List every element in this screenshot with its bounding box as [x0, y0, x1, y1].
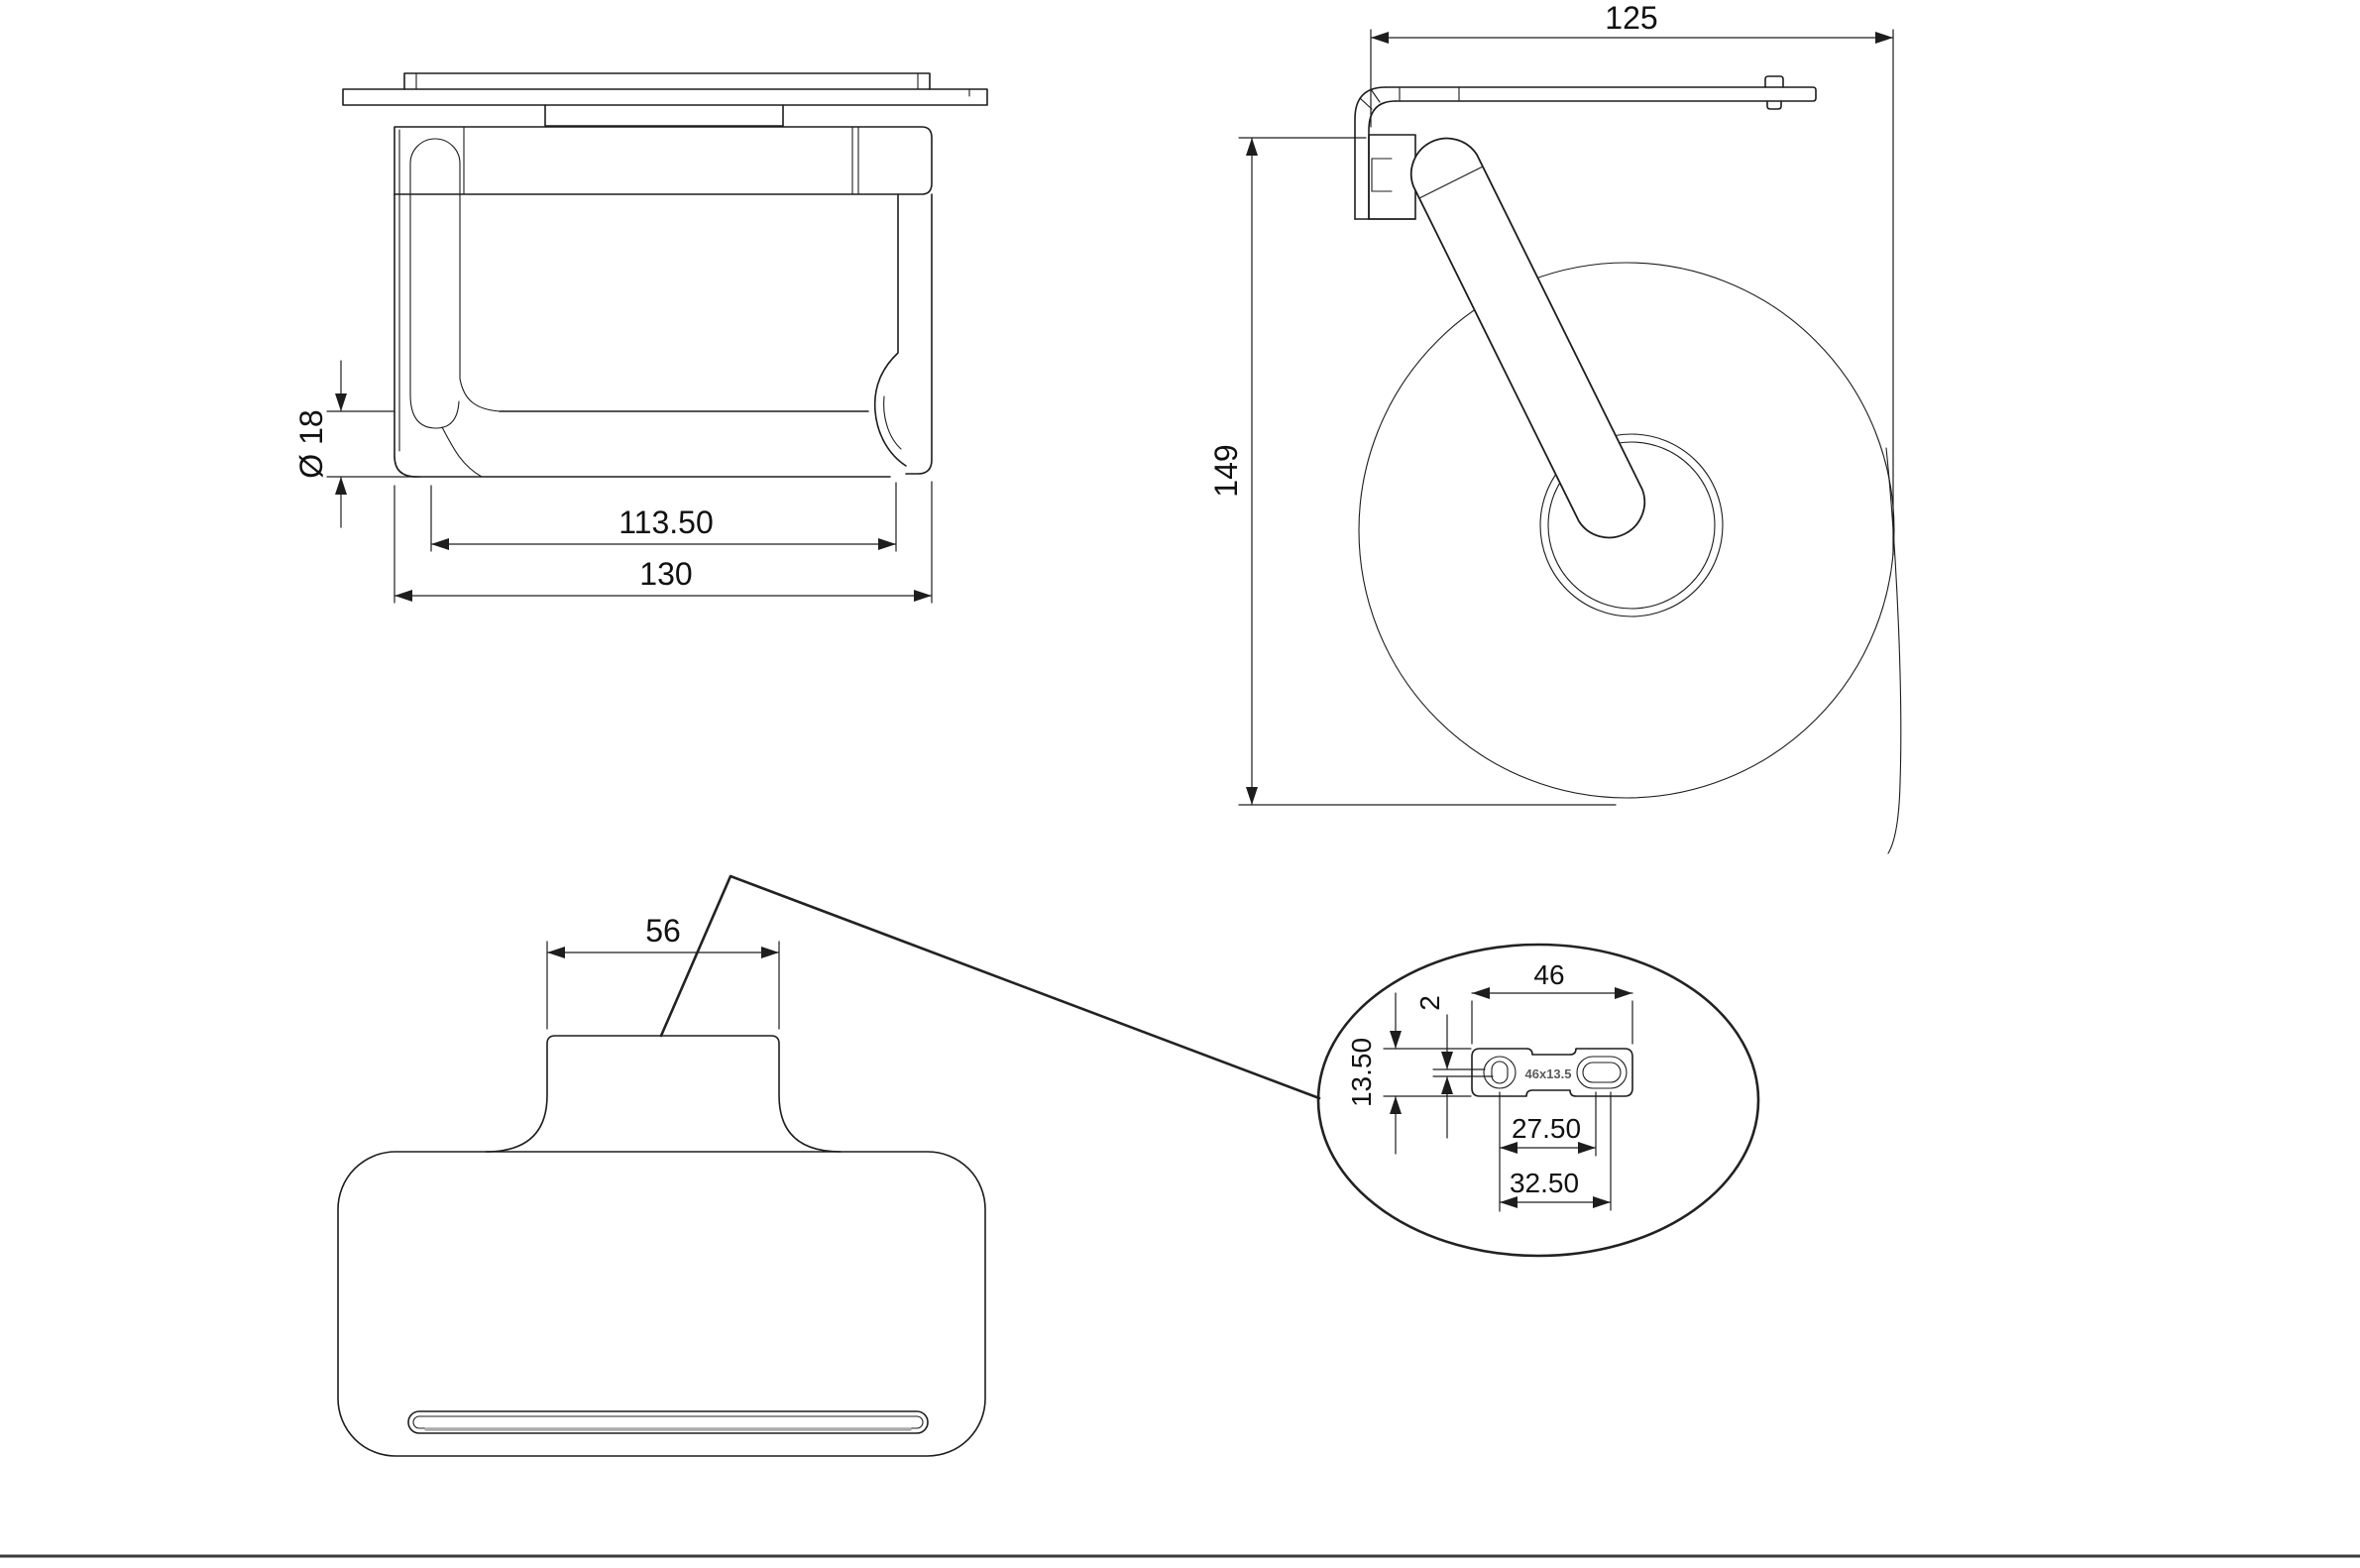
mount-tab — [486, 1036, 841, 1152]
dim-top-tab-width: 56 — [645, 913, 681, 949]
right-hole-slot — [1583, 1063, 1621, 1082]
drawing-sheet: Ø 18 113.50 130 125 149 — [0, 0, 2360, 1568]
dim-front-inner-width: 113.50 — [618, 504, 714, 540]
left-hole-slot — [1492, 1062, 1508, 1083]
arrowhead-right-icon — [1875, 32, 1893, 44]
arrowhead-left-icon — [431, 538, 449, 550]
wall-mount-plate — [545, 105, 783, 126]
detail-leader-line — [661, 876, 1319, 1098]
arrowhead-right-icon — [1615, 987, 1632, 999]
dim-side-height: 149 — [1208, 444, 1244, 497]
holder-arm-side — [1411, 139, 1644, 538]
arrowhead-up-icon — [1390, 1096, 1402, 1114]
arrowhead-down-icon — [335, 393, 347, 411]
arrowhead-down-icon — [1390, 1031, 1402, 1049]
dim-detail-plate-width: 46 — [1533, 959, 1564, 990]
technical-drawing: Ø 18 113.50 130 125 149 — [0, 0, 2360, 1568]
dim-side-depth: 125 — [1605, 0, 1657, 36]
shelf-back-plate-joints — [416, 73, 918, 89]
dim-diameter-lines — [327, 361, 420, 527]
dim-plate-height-lines — [1384, 993, 1471, 1154]
holder-top-arm — [394, 127, 932, 194]
shelf-plan-outline — [338, 1152, 985, 1456]
side-view: 125 149 — [1208, 0, 1901, 853]
shelf-side-profile — [1386, 87, 1816, 101]
bracket-bend — [1355, 87, 1396, 219]
dim-detail-pitch-outer: 32.50 — [1510, 1168, 1579, 1198]
holder-left-post — [394, 194, 416, 477]
dim-rim-lines — [1433, 1015, 1493, 1138]
roll-bar-tube — [416, 411, 890, 477]
shelf-front-slab — [343, 89, 987, 105]
arrowhead-left-icon — [394, 590, 412, 602]
arrowhead-right-icon — [914, 590, 932, 602]
dim-plate-width-lines — [1472, 993, 1632, 1044]
front-view: Ø 18 113.50 130 — [293, 73, 987, 603]
arrowhead-left-icon — [1472, 987, 1490, 999]
dim-tab-width-lines — [547, 942, 779, 1029]
arrowhead-up-icon — [335, 477, 347, 495]
shelf-pin — [1765, 76, 1783, 109]
shelf-back-plate — [404, 73, 930, 89]
holder-arm-joints — [464, 127, 858, 194]
dim-front-overall-width: 130 — [639, 556, 692, 592]
arrowhead-down-icon — [1441, 1052, 1453, 1069]
bracket-screw-boss — [1372, 159, 1392, 191]
plate-stamp-label: 46x13.5 — [1525, 1066, 1572, 1081]
dim-detail-rim: 2 — [1414, 995, 1445, 1011]
arrowhead-right-icon — [761, 947, 779, 958]
dim-detail-plate-height: 13.50 — [1346, 1038, 1377, 1107]
arrowhead-right-icon — [878, 538, 896, 550]
drain-slot-inner — [413, 1416, 923, 1428]
right-hook-inner-curve — [884, 396, 901, 449]
left-post-slot-profile — [410, 139, 500, 477]
dim-front-bar-diameter: Ø 18 — [293, 409, 329, 478]
arrowhead-up-icon — [1441, 1076, 1453, 1094]
mounting-plate-detail: 46x13.5 46 2 13.50 27.50 32.50 — [1318, 945, 1758, 1256]
arrowhead-left-icon — [547, 947, 565, 958]
arrowhead-down-icon — [1246, 787, 1258, 805]
detail-bubble — [1318, 945, 1758, 1256]
arrowhead-up-icon — [1246, 138, 1258, 156]
dim-detail-pitch-inner: 27.50 — [1512, 1113, 1581, 1144]
bracket-block — [1369, 135, 1415, 219]
shelf-side-joints — [1400, 87, 1459, 101]
right-hole-outer — [1577, 1057, 1627, 1088]
arrowhead-right-icon — [1593, 1196, 1611, 1208]
top-view-shelf: 56 — [338, 876, 1319, 1456]
arrowhead-left-icon — [1371, 32, 1389, 44]
right-hook — [875, 194, 932, 474]
